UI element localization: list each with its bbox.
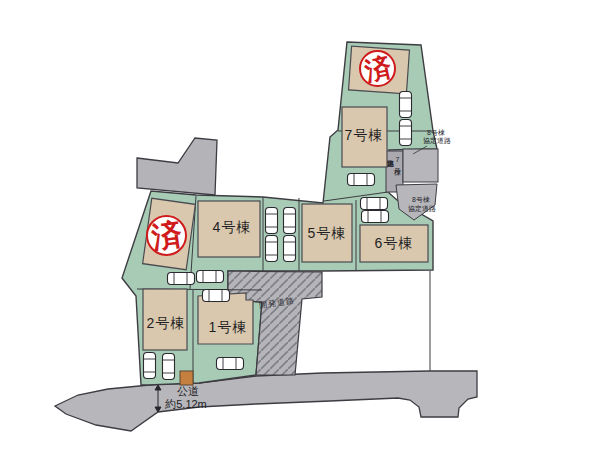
car-icon	[362, 211, 389, 223]
building-7-label: 7号棟	[345, 127, 384, 145]
car-icon	[144, 353, 156, 379]
car-icon	[284, 208, 296, 234]
car-icon	[361, 198, 388, 210]
car-icon	[197, 271, 224, 283]
car-icon	[217, 358, 244, 370]
public-road-width-label: 約5.12m	[165, 397, 207, 412]
building-1-label: 1号棟	[209, 319, 248, 337]
car-icon	[168, 273, 195, 285]
car-icon	[163, 354, 175, 380]
sold-stamp-top: 済	[359, 50, 396, 87]
agreement-vertical-label-right: 7号棟	[394, 156, 401, 163]
car-icon	[203, 290, 230, 302]
agreement-lower-label-line2: 協定道路	[408, 204, 436, 214]
car-icon	[266, 236, 278, 262]
sold-stamp-left-text: 済	[150, 219, 184, 253]
building-2-label: 2号棟	[147, 315, 186, 333]
neighbor-parcel-gray	[137, 138, 217, 195]
building-6-label: 6号棟	[375, 235, 414, 253]
sold-stamp-left: 済	[146, 215, 187, 256]
agreement-road-block	[403, 149, 438, 182]
car-icon	[284, 236, 296, 262]
site-plan: 7号棟 4号棟 5号棟 6号棟 2号棟 1号棟 済 済 開発道路 8号棟 協定道…	[0, 0, 600, 449]
agreement-upper-label-line2: 協定道路	[423, 136, 451, 146]
car-icon	[266, 208, 278, 234]
car-icon	[348, 174, 375, 186]
car-icon	[400, 92, 412, 118]
building-4-label: 4号棟	[213, 219, 252, 237]
sold-stamp-top-text: 済	[362, 53, 393, 84]
car-icon	[400, 120, 412, 146]
public-road-bottom	[55, 371, 477, 431]
site-plan-drawing	[0, 0, 600, 449]
building-5-label: 5号棟	[308, 225, 347, 243]
